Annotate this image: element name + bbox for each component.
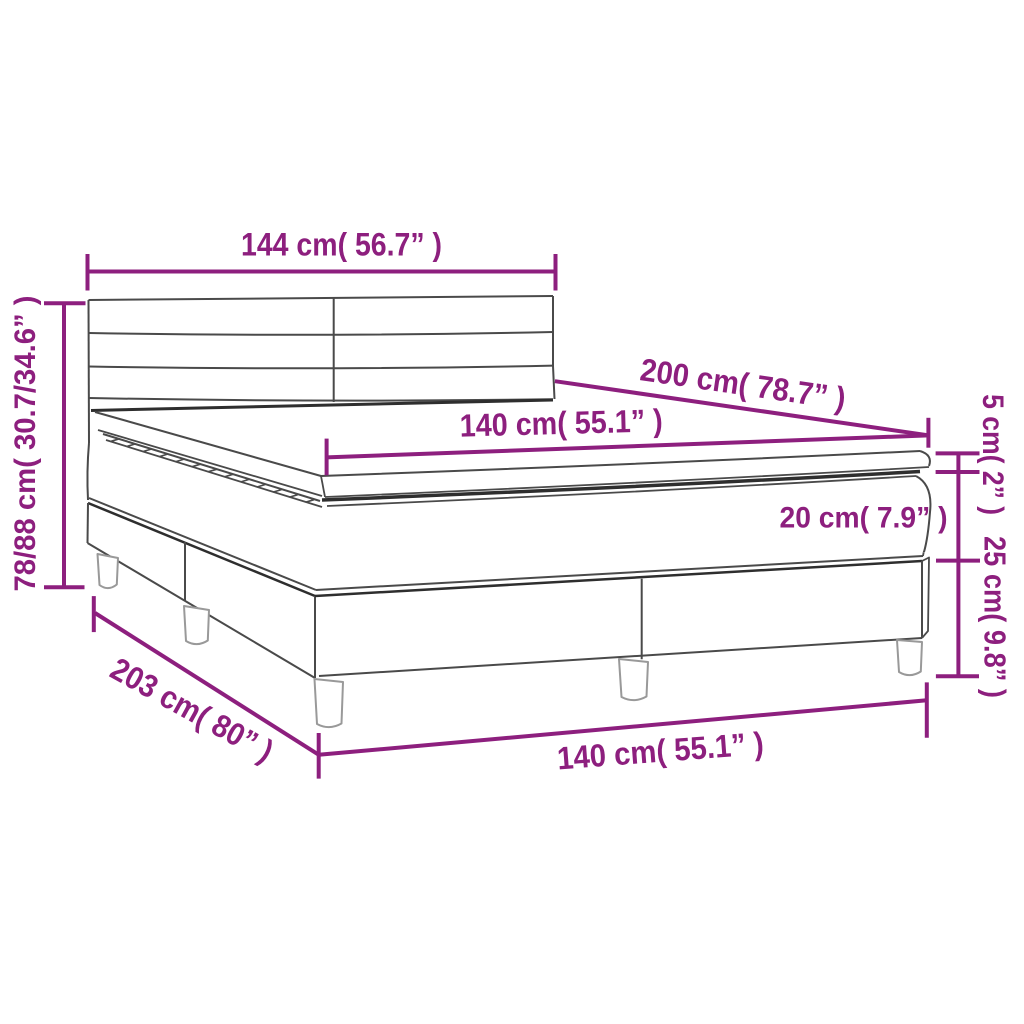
svg-text:5 cm( 2” ): 5 cm( 2” ) [976,394,1009,515]
svg-text:144 cm( 56.7” ): 144 cm( 56.7” ) [241,227,442,263]
svg-text:78/88 cm( 30.7/34.6” ): 78/88 cm( 30.7/34.6” ) [9,296,42,592]
svg-text:25 cm( 9.8” ): 25 cm( 9.8” ) [978,536,1013,698]
svg-text:20 cm( 7.9” ): 20 cm( 7.9” ) [780,502,948,535]
svg-text:140 cm( 55.1” ): 140 cm( 55.1” ) [459,402,663,443]
